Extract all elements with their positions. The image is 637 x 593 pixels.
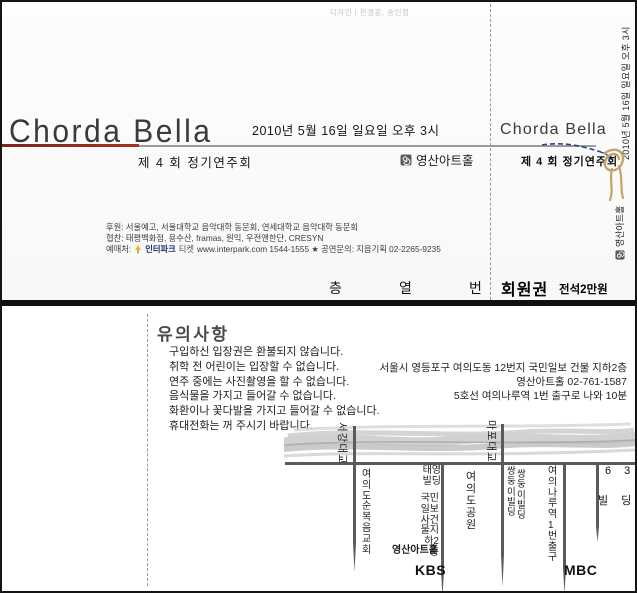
address-line: 서울시 영등포구 여의도동 12번지 국민일보 건물 지하2층 (379, 362, 627, 376)
map-road-seogang (353, 426, 356, 572)
ticket-scan-page: 디자인 | 한경훈, 송인정 Chorda Bella 제 4 회 정기연주회 … (0, 0, 637, 593)
sponsor-line-2: 협찬: 태평백화점, 용수산, framas, 원익, 우전앤한단, CRESY… (106, 233, 441, 244)
location-map: 서강대교 마포대교 여의도순복음교회 태영빌딩 국민일보사건물지하2층 영산아트… (2, 414, 637, 593)
map-label-church: 여의도순복음교회 (362, 470, 374, 556)
seat-row-label: 열 (399, 278, 412, 298)
interpark-ticket-label: 티켓 (179, 244, 194, 255)
bridge-label-seogang: 서강대교 (335, 422, 350, 470)
bridge-label-mapo: 마포대교 (484, 420, 499, 468)
venue-logo-icon (615, 250, 625, 260)
ticket-front-panel: 디자인 | 한경훈, 송인정 Chorda Bella 제 4 회 정기연주회 … (2, 2, 635, 302)
map-label-mbc: MBC (564, 562, 597, 578)
ticket-back-panel: 유의사항 구입하신 입장권은 환불되지 않습니다. 취학 전 어린이는 입장할 … (2, 306, 635, 591)
venue-address-block: 서울시 영등포구 여의도동 12번지 국민일보 건물 지하2층 영산아트홀 02… (379, 362, 627, 403)
notice-item: 음식물을 가지고 들어갈 수 없습니다. (169, 389, 380, 404)
booking-rest: www.interpark.com 1544-1555 ★ 공연문의: 지음기획… (197, 244, 441, 255)
booking-line: 예매처: 인터파크 티켓 www.interpark.com 1544-1555… (106, 244, 441, 255)
map-label-station-exit: 여의나루역1번출구 (548, 467, 560, 564)
booking-prefix: 예매처: (106, 244, 131, 255)
notice-title: 유의사항 (157, 320, 230, 345)
map-label-park: 여의도공원 (466, 472, 479, 531)
notice-item: 연주 중에는 사진촬영을 할 수 없습니다. (169, 375, 380, 390)
address-line: 5호선 여의나루역 1번 출구로 나와 10분 (379, 390, 627, 404)
seat-number-label: 번 (469, 278, 482, 298)
seat-floor-label: 층 (329, 278, 342, 298)
venue-label: 영산아트홀 (416, 150, 474, 169)
map-label-63-top: 6 3 (605, 465, 635, 477)
map-label-twin-building: 쌍둥이빌딩 (517, 470, 528, 521)
address-line: 영산아트홀 02-761-1587 (379, 376, 627, 390)
string-knot-illustration (538, 132, 637, 206)
price-label: 전석2만원 (559, 281, 608, 297)
title-underline-red (2, 144, 139, 147)
sponsor-line-1: 후원: 서울예고, 서울대학교 음악대학 동문회, 연세대학교 음악대학 동문회 (106, 222, 441, 233)
map-label-venue-hall: 영산아트홀 (392, 541, 438, 556)
map-label-63-bottom: 빌 딩 (598, 492, 636, 508)
interpark-label: 인터파크 (145, 244, 176, 255)
design-credit: 디자인 | 한경훈, 송인정 (330, 7, 409, 18)
stub-venue-label: 영산아트홀 (613, 206, 626, 247)
venue-logo-icon (400, 154, 412, 166)
sponsor-block: 후원: 서울예고, 서울대학교 음악대학 동문회, 연세대학교 음악대학 동문회… (106, 222, 441, 255)
concert-datetime: 2010년 5월 16일 일요일 오후 3시 (252, 120, 439, 139)
map-road-mapo (501, 424, 504, 587)
venue-row: 영산아트홀 (400, 150, 474, 169)
map-label-kbs: KBS (415, 562, 446, 578)
notice-item: 구입하신 입장권은 환불되지 않습니다. (169, 345, 380, 360)
edition-label: 제 4 회 정기연주회 (138, 152, 252, 171)
interpark-logo-icon (134, 245, 142, 254)
notice-item: 취학 전 어린이는 입장할 수 없습니다. (169, 360, 380, 375)
map-label-taeyoung: 태영빌딩 (418, 466, 441, 488)
ticket-type-label: 회원권 (501, 276, 548, 300)
